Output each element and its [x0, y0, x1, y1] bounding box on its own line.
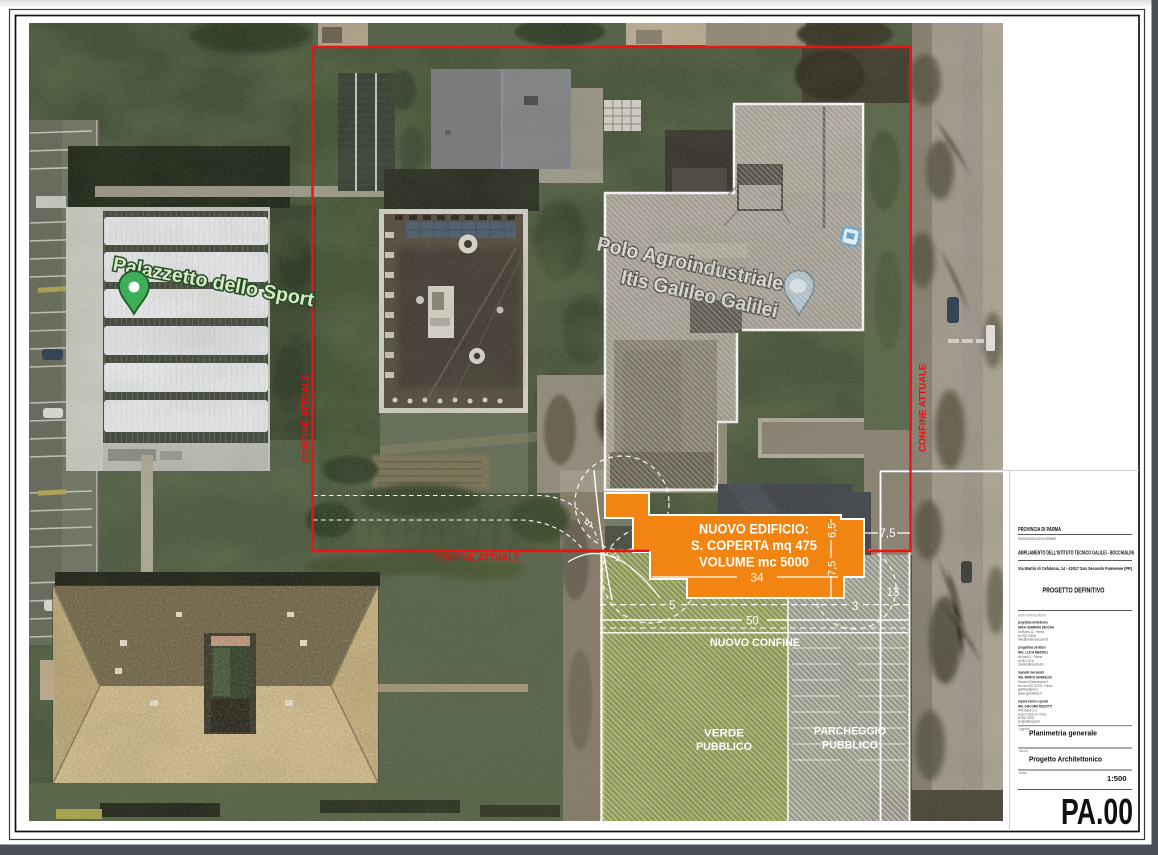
svg-text:PARCHEGGIO: PARCHEGGIO [814, 726, 886, 738]
svg-text:impianti meccanici: impianti meccanici [1018, 671, 1044, 675]
svg-text:PROVINCIA DI PARMA: PROVINCIA DI PARMA [1018, 527, 1061, 533]
svg-text:ING. LUCA MEDIOLI: ING. LUCA MEDIOLI [1018, 651, 1048, 655]
svg-text:S. COPERTA mq 475: S. COPERTA mq 475 [691, 538, 817, 554]
svg-text:3: 3 [852, 601, 858, 613]
svg-text:PROGETTO DEFINITIVO: PROGETTO DEFINITIVO [1043, 586, 1105, 595]
svg-text:50: 50 [746, 616, 759, 628]
svg-text:5: 5 [669, 600, 675, 612]
svg-text:CONFINE ATTUALE: CONFINE ATTUALE [301, 374, 312, 462]
svg-text:13: 13 [887, 587, 900, 599]
svg-text:www.gianfelici.it: www.gianfelici.it [1018, 691, 1042, 695]
svg-text:VERDE: VERDE [704, 728, 744, 740]
svg-text:CONFINE ATTUALE: CONFINE ATTUALE [918, 364, 929, 452]
svg-text:34: 34 [750, 571, 764, 585]
svg-text:progettista strutture: progettista strutture [1018, 646, 1046, 650]
svg-text:7,5: 7,5 [880, 528, 896, 540]
svg-text:Progetto Architettonico: Progetto Architettonico [1029, 755, 1102, 764]
svg-text:info@studiosaccani.it: info@studiosaccani.it [1018, 638, 1048, 642]
svg-text:Via Martiri di Cefalonia, 14 -: Via Martiri di Cefalonia, 14 - 43017 San… [1018, 566, 1132, 572]
svg-text:PUBBLICO: PUBBLICO [822, 740, 878, 752]
svg-text:GRUPPO DI PROGETTAZIONE: GRUPPO DI PROGETTAZIONE [1018, 614, 1046, 618]
svg-text:tavola: tavola [1019, 749, 1028, 753]
svg-text:ARCH. GERMANO SACCANI: ARCH. GERMANO SACCANI [1018, 626, 1054, 630]
svg-text:VOLUME mc 5000: VOLUME mc 5000 [699, 555, 809, 571]
svg-text:progea@progea.it: progea@progea.it [1018, 719, 1040, 723]
svg-text:6,5: 6,5 [827, 523, 839, 538]
svg-text:AMPLIAMENTO DELL'ISTITUTO TECN: AMPLIAMENTO DELL'ISTITUTO TECNICO GALILE… [1018, 551, 1134, 557]
svg-text:ING. MARCO GIANFELICI: ING. MARCO GIANFELICI [1018, 676, 1052, 680]
svg-text:CONFINE ATTUALE: CONFINE ATTUALE [434, 553, 520, 564]
svg-text:NUOVO CONFINE: NUOVO CONFINE [710, 637, 800, 649]
svg-text:SERVIZIO EDILIZIA SCOLASTICA E: SERVIZIO EDILIZIA SCOLASTICA E PATRIMONI… [1018, 537, 1056, 541]
svg-text:impianti elettrici e speciali: impianti elettrici e speciali [1018, 699, 1048, 703]
svg-text:7,5: 7,5 [827, 561, 839, 576]
svg-text:PUBBLICO: PUBBLICO [696, 741, 752, 753]
svg-text:1:500: 1:500 [1107, 774, 1127, 783]
svg-text:studio@medioli.it: studio@medioli.it [1018, 663, 1044, 667]
svg-text:scala: scala [1019, 771, 1027, 775]
svg-text:progettista architettonico: progettista architettonico [1018, 621, 1049, 625]
svg-text:NUOVO EDIFICIO:: NUOVO EDIFICIO: [699, 522, 809, 538]
svg-text:Planimetria generale: Planimetria generale [1029, 729, 1097, 738]
svg-text:PA.00: PA.00 [1061, 791, 1133, 832]
